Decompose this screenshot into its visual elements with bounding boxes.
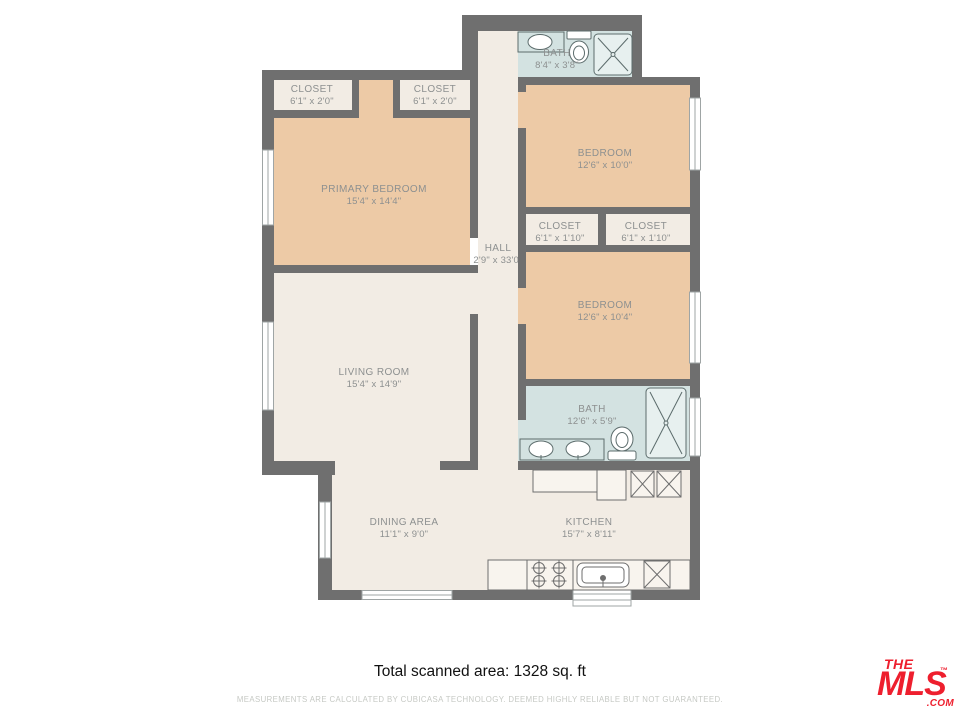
- window: [263, 150, 274, 225]
- room-label-bath-top: BATH 8'4" x 3'8": [535, 48, 579, 72]
- disclaimer-text: MEASUREMENTS ARE CALCULATED BY CUBICASA …: [0, 695, 960, 704]
- appliance-icon: [657, 471, 681, 497]
- floor-plan: BATH 8'4" x 3'8" CLOSET 6'1" x 2'0" CLOS…: [0, 0, 960, 720]
- room-label-closet-mid-right: CLOSET 6'1" x 1'10": [621, 221, 670, 245]
- plan-symbols: [0, 0, 960, 720]
- vanity-double-sink-icon: [520, 439, 604, 460]
- window: [690, 98, 701, 170]
- appliance-icon: [644, 561, 670, 588]
- kitchen-sink-icon: [577, 563, 629, 587]
- room-label-closet-top-right: CLOSET 6'1" x 2'0": [413, 84, 457, 108]
- logo-mls-text: MLS: [877, 667, 946, 701]
- appliance-icon: [597, 470, 626, 500]
- logo-com-text: .COM: [927, 699, 954, 709]
- room-label-bath-bottom: BATH 12'6" x 5'9": [567, 404, 616, 428]
- stove-icon: [527, 560, 573, 590]
- room-label-kitchen: KITCHEN 15'7" x 8'11": [562, 517, 616, 541]
- room-label-bedroom-2: BEDROOM 12'6" x 10'4": [578, 300, 633, 324]
- total-area-text: Total scanned area: 1328 sq. ft: [0, 663, 960, 681]
- room-label-bedroom-1: BEDROOM 12'6" x 10'0": [578, 148, 633, 172]
- room-label-closet-top-left: CLOSET 6'1" x 2'0": [290, 84, 334, 108]
- kitchen-counter: [533, 470, 597, 492]
- window: [320, 502, 331, 558]
- appliance-icon: [631, 471, 654, 497]
- window: [690, 292, 701, 363]
- toilet-icon: [608, 427, 636, 460]
- room-label-living-room: LIVING ROOM 15'4" x 14'9": [338, 367, 409, 391]
- themls-logo: THE MLS ™ .COM: [876, 655, 956, 713]
- window: [263, 322, 274, 410]
- window: [573, 589, 631, 606]
- window: [690, 398, 701, 456]
- room-label-primary-bedroom: PRIMARY BEDROOM 15'4" x 14'4": [321, 184, 427, 208]
- trademark-symbol: ™: [940, 667, 948, 675]
- room-label-dining-area: DINING AREA 11'1" x 9'0": [370, 517, 439, 541]
- window: [362, 591, 452, 600]
- room-label-closet-mid-left: CLOSET 6'1" x 1'10": [535, 221, 584, 245]
- shower-icon: [594, 34, 632, 75]
- shower-icon: [646, 388, 686, 458]
